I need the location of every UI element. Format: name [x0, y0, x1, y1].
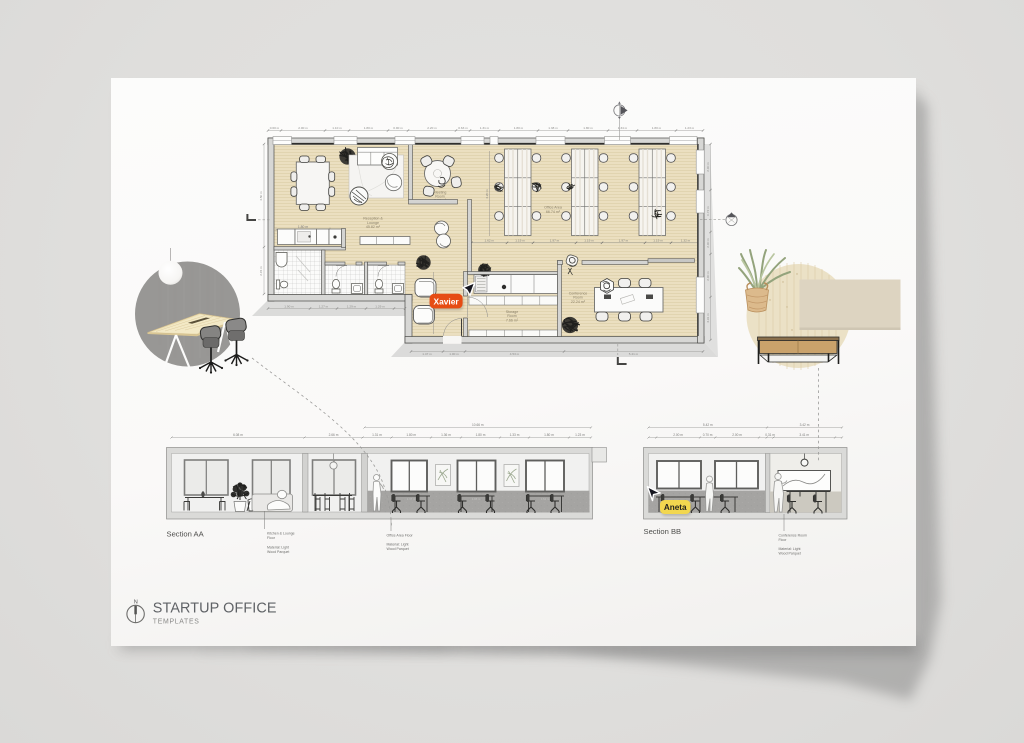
svg-text:1.29 m: 1.29 m [375, 304, 385, 308]
svg-text:1.23 m: 1.23 m [685, 126, 695, 130]
svg-text:45.82 m²: 45.82 m² [366, 225, 381, 229]
svg-text:0.90 m: 0.90 m [393, 126, 403, 130]
svg-text:1.80 m: 1.80 m [298, 225, 309, 229]
svg-text:2.20 m: 2.20 m [427, 126, 437, 130]
svg-text:2.15 m: 2.15 m [259, 266, 263, 276]
svg-text:1.80 m: 1.80 m [406, 433, 416, 437]
svg-text:1.80 m: 1.80 m [583, 126, 593, 130]
svg-text:3.42 m: 3.42 m [800, 423, 810, 427]
svg-text:1.52 m: 1.52 m [541, 497, 550, 501]
svg-text:Wood Parquet: Wood Parquet [267, 550, 289, 554]
svg-text:0.63 m: 0.63 m [458, 126, 468, 130]
svg-text:2.00 m: 2.00 m [673, 433, 683, 437]
svg-text:2.00 m: 2.00 m [706, 162, 710, 172]
svg-text:STARTUP OFFICE: STARTUP OFFICE [153, 600, 277, 616]
svg-text:6.08 m: 6.08 m [233, 433, 243, 437]
svg-text:1.80 m: 1.80 m [364, 126, 374, 130]
svg-text:1.00 m: 1.00 m [449, 352, 459, 356]
svg-text:0.60 m: 0.60 m [270, 126, 280, 130]
svg-text:1.23 m: 1.23 m [575, 433, 585, 437]
svg-text:Floor: Floor [779, 538, 788, 542]
svg-text:1.80 m: 1.80 m [652, 126, 662, 130]
svg-text:TEMPLATES: TEMPLATES [153, 618, 200, 625]
svg-text:0.72 m: 0.72 m [706, 206, 710, 216]
svg-text:22.24 m²: 22.24 m² [571, 300, 586, 304]
svg-text:Kitchen & Lounge: Kitchen & Lounge [267, 532, 295, 536]
svg-text:10.66 m: 10.66 m [472, 423, 484, 427]
svg-text:1.80 m: 1.80 m [476, 433, 486, 437]
svg-text:1.19 m: 1.19 m [653, 238, 663, 242]
svg-text:1.90 m: 1.90 m [284, 304, 294, 308]
svg-text:7.66 m²: 7.66 m² [506, 318, 519, 322]
svg-text:Section BB: Section BB [644, 527, 682, 536]
svg-text:3.41 m: 3.41 m [799, 433, 809, 437]
svg-text:0.70 m: 0.70 m [703, 433, 713, 437]
svg-text:5.42 m: 5.42 m [703, 423, 713, 427]
svg-text:1.19 m: 1.19 m [515, 238, 525, 242]
svg-text:0.31 m: 0.31 m [765, 433, 775, 437]
svg-text:1.29 m: 1.29 m [347, 304, 357, 308]
svg-text:1.33 m: 1.33 m [510, 433, 520, 437]
svg-text:1.62 m: 1.62 m [485, 238, 495, 242]
svg-text:1.80 m: 1.80 m [514, 126, 524, 130]
svg-text:4.20 m: 4.20 m [485, 189, 489, 199]
svg-text:1.97 m: 1.97 m [619, 238, 629, 242]
svg-text:1.47 m: 1.47 m [407, 497, 416, 501]
svg-text:Floor: Floor [267, 536, 276, 540]
svg-text:N: N [134, 599, 138, 605]
svg-text:1.98 m: 1.98 m [472, 497, 481, 501]
svg-text:2.66 m: 2.66 m [329, 433, 339, 437]
svg-text:1.47 m: 1.47 m [422, 352, 432, 356]
svg-text:1.31 m: 1.31 m [480, 126, 490, 130]
svg-text:3.91 m: 3.91 m [706, 313, 710, 323]
svg-text:1.36 m: 1.36 m [441, 433, 451, 437]
svg-text:1.38 m: 1.38 m [548, 126, 558, 130]
svg-text:Conference Room: Conference Room [779, 534, 807, 538]
svg-text:Material: Light: Material: Light [267, 546, 289, 550]
svg-text:Xavier: Xavier [434, 296, 460, 306]
svg-text:Material: Light: Material: Light [387, 543, 409, 547]
svg-text:2.00 m: 2.00 m [298, 126, 308, 130]
svg-text:4.53 m: 4.53 m [510, 352, 520, 356]
svg-text:Office Area Floor: Office Area Floor [387, 534, 414, 538]
svg-text:Material: Light: Material: Light [779, 547, 801, 551]
svg-text:1.27 m: 1.27 m [319, 304, 329, 308]
svg-text:2.00 m: 2.00 m [706, 238, 710, 248]
svg-text:Wood Parquet: Wood Parquet [779, 552, 801, 556]
svg-text:Aneta: Aneta [664, 503, 687, 512]
svg-text:5.41 m: 5.41 m [629, 352, 639, 356]
svg-text:4.50 m: 4.50 m [259, 191, 263, 201]
svg-text:2.00 m: 2.00 m [732, 433, 742, 437]
svg-text:Section AA: Section AA [167, 530, 205, 539]
svg-text:1.10 m: 1.10 m [332, 126, 342, 130]
svg-text:1.32 m: 1.32 m [681, 238, 691, 242]
svg-text:1.31 m: 1.31 m [372, 433, 382, 437]
svg-text:1.97 m: 1.97 m [550, 238, 560, 242]
svg-text:1.19 m: 1.19 m [584, 238, 594, 242]
svg-text:66.74 m²: 66.74 m² [546, 210, 561, 214]
svg-text:2.00 m: 2.00 m [706, 271, 710, 281]
svg-text:1.80 m: 1.80 m [544, 433, 554, 437]
svg-text:Wood Parquet: Wood Parquet [387, 547, 409, 551]
